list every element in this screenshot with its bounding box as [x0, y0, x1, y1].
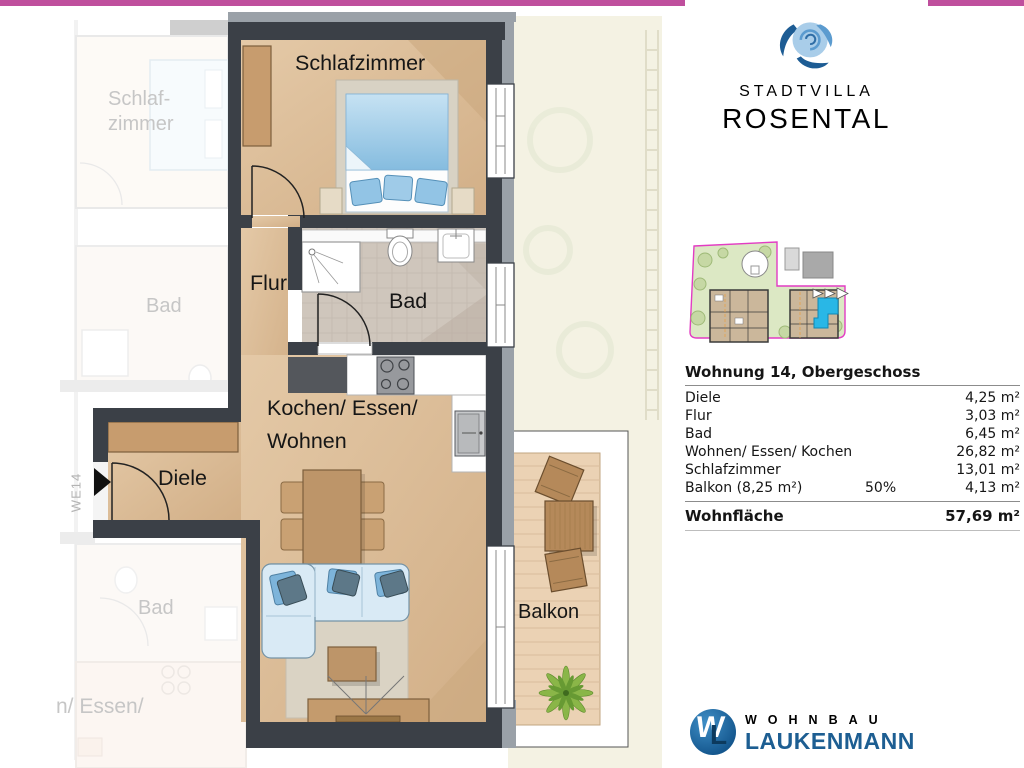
room-label-schlafzimmer: Schlafzimmer [295, 51, 425, 76]
company-line-2: LAUKENMANN [745, 728, 915, 755]
rose-icon [767, 12, 847, 76]
row-name: Bad [685, 426, 865, 442]
neighbor-label-bad-top: Bad [146, 295, 182, 318]
unit-header-bar: Wohnung Nr.14| OG | Objekt Nr.630 [684, 209, 1019, 234]
floor-plan-drawing [0, 0, 685, 768]
brand-line-1: STADTVILLA [685, 83, 928, 101]
area-table-rows: Diele 4,25 m² Flur 3,03 m² Bad 6,45 m² W… [685, 385, 1020, 497]
company-logo: W L WOHNBAU LAUKENMANN [685, 706, 1024, 768]
room-label-kochen-essen: Kochen/ Essen/ [267, 396, 418, 421]
dining-table [303, 470, 361, 564]
potted-plant [539, 666, 593, 720]
bed [346, 94, 448, 212]
row-value: 6,45 m² [923, 426, 1020, 442]
company-line-1: WOHNBAU [745, 713, 915, 727]
row-name: Diele [685, 390, 865, 406]
table-row: Schlafzimmer 13,01 m² [685, 461, 1020, 479]
toilet [387, 229, 413, 266]
wl-monogram-icon: W L [690, 709, 736, 755]
bath-window [487, 263, 514, 347]
kitchen-cabinet [288, 357, 347, 393]
company-name: WOHNBAU LAUKENMANN [745, 713, 915, 755]
neighbor-label-schlaf: Schlaf- [108, 88, 170, 111]
row-value: 13,01 m² [923, 462, 1020, 478]
row-value: 26,82 m² [923, 444, 1020, 460]
wardrobe [243, 46, 271, 146]
room-label-bad: Bad [389, 289, 427, 314]
row-name: Flur [685, 408, 865, 424]
balcony-table [545, 501, 593, 551]
row-note: 50% [865, 480, 923, 496]
shower [302, 242, 360, 292]
row-value: 3,03 m² [923, 408, 1020, 424]
building-a [710, 290, 768, 342]
row-value: 4,25 m² [923, 390, 1020, 406]
living-area [262, 564, 429, 723]
room-label-wohnen: Wohnen [267, 429, 347, 454]
footer-divider-bar [685, 692, 1024, 699]
neighbor-label-bad-bottom: Bad [138, 597, 174, 620]
area-table-total: Wohnfläche 57,69 m² [685, 501, 1020, 531]
floor-plan: Schlafzimmer Flur Bad Kochen/ Essen/ Woh… [0, 0, 685, 768]
area-table-title: Wohnung 14, Obergeschoss [685, 363, 1020, 385]
total-value: 57,69 m² [853, 507, 1021, 525]
row-value: 4,13 m² [923, 480, 1020, 496]
total-name: Wohnfläche [685, 507, 853, 525]
monogram-l: L [710, 719, 727, 751]
row-name: Balkon (8,25 m²) [685, 480, 865, 496]
neighbor-label-essen: n/ Essen/ [56, 695, 144, 719]
table-row: Wohnen/ Essen/ Kochen 26,82 m² [685, 443, 1020, 461]
balcony-chair [545, 548, 587, 592]
row-name: Schlafzimmer [685, 462, 865, 478]
stove [377, 357, 414, 394]
site-plan [685, 238, 868, 356]
row-name: Wohnen/ Essen/ Kochen [685, 444, 865, 460]
area-table: Wohnung 14, Obergeschoss Diele 4,25 m² F… [685, 363, 1020, 531]
project-logo-card: STADTVILLA ROSENTAL [685, 0, 928, 170]
bedroom-window [487, 84, 514, 178]
table-row: Diele 4,25 m² [685, 389, 1020, 407]
table-row: Flur 3,03 m² [685, 407, 1020, 425]
hall-wardrobe [108, 422, 238, 452]
neighbor-label-zimmer: zimmer [108, 113, 174, 136]
room-label-balkon: Balkon [518, 601, 579, 624]
brand-line-2: ROSENTAL [685, 103, 928, 135]
room-label-diele: Diele [158, 466, 207, 491]
room-label-flur: Flur [250, 271, 287, 296]
refrigerator [455, 411, 485, 456]
table-row: Bad 6,45 m² [685, 425, 1020, 443]
table-row: Balkon (8,25 m²) 50% 4,13 m² [685, 479, 1020, 497]
coffee-table [328, 647, 376, 681]
brochure-page: Schlafzimmer Flur Bad Kochen/ Essen/ Woh… [0, 0, 1024, 768]
balcony [507, 431, 628, 747]
unit-tag: WE14 [69, 463, 84, 523]
balcony-door [487, 546, 514, 708]
sink [438, 229, 474, 262]
